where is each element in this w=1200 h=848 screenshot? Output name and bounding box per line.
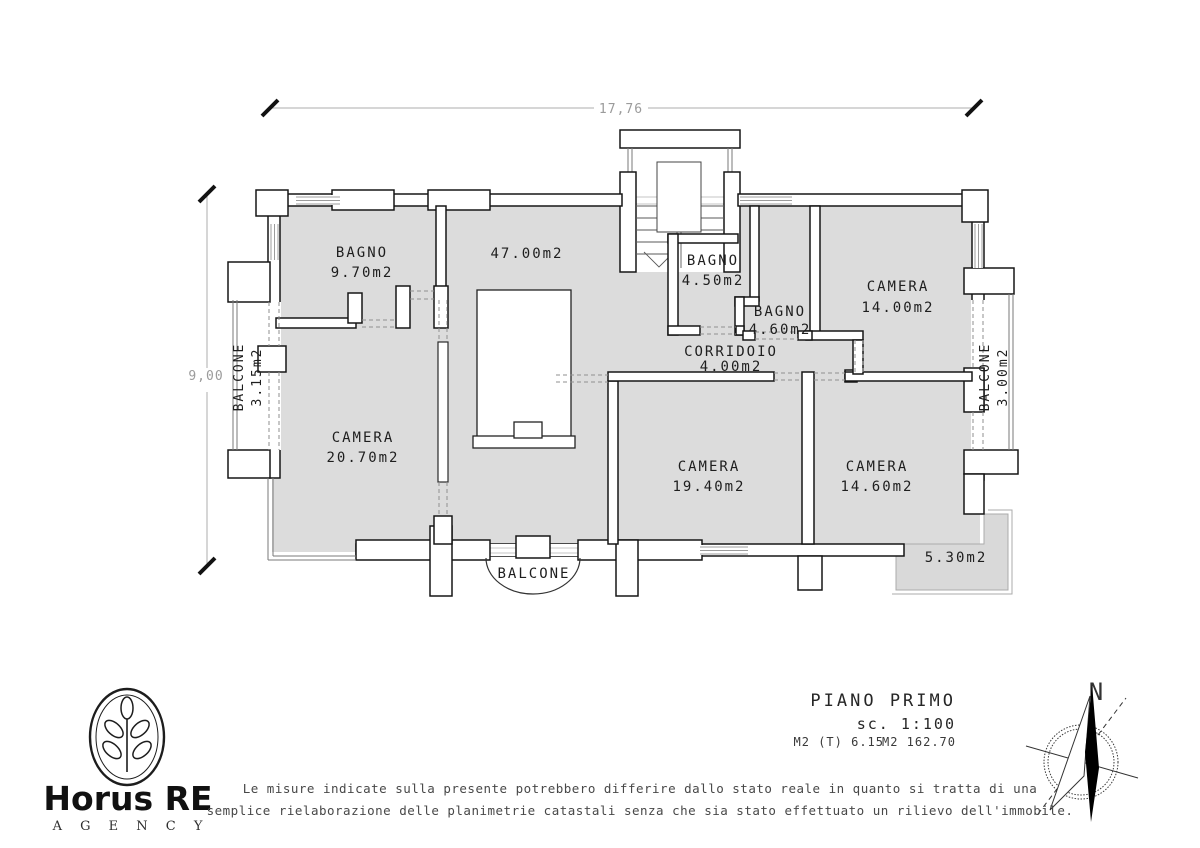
room-corridoio-area: 4.00m2 <box>700 359 763 375</box>
stair-landing <box>620 130 740 148</box>
room-bagno-c2-name: BAGNO <box>754 304 806 320</box>
room-camera-ne-area: 14.00m2 <box>861 300 934 316</box>
balcony-left-name: BALCONE <box>232 343 247 412</box>
wheat-branch-icon <box>100 697 154 772</box>
room-bagno-nw-area: 9.70m2 <box>331 265 394 281</box>
dimension-left: 9,00 <box>188 186 223 574</box>
floor-title: PIANO PRIMO <box>810 691 956 711</box>
room-camera-w-name: CAMERA <box>332 430 395 446</box>
room-bagno-c-area: 4.50m2 <box>682 273 745 289</box>
scale-label: sc. 1:100 <box>857 715 956 733</box>
logo-brand-text: Horus RE <box>43 779 212 818</box>
horus-logo: Horus RE A G E N C Y <box>43 689 212 834</box>
stair-upper-landing <box>657 162 701 232</box>
balcony-bottom: BALCONE <box>486 558 580 594</box>
area-note-right: M2 162.70 <box>882 735 956 749</box>
room-camera-s-area: 19.40m2 <box>672 479 745 495</box>
balcony-bottom-name: BALCONE <box>497 566 570 582</box>
width-dimension-label: 17,76 <box>599 102 643 117</box>
disclaimer-line2: semplice rielaborazione delle planimetri… <box>207 803 1074 818</box>
room-camera-se-area: 14.60m2 <box>840 479 913 495</box>
compass-rose-icon: N <box>1026 678 1138 822</box>
balcony-left: BALCONE 3.15m2 <box>232 300 265 450</box>
dimension-top: 17,76 <box>262 100 982 117</box>
title-block: PIANO PRIMO sc. 1:100 M2 (T) 6.15 M2 162… <box>794 691 956 749</box>
room-corridoio-name: CORRIDOIO <box>684 344 778 360</box>
balcony-door-sill <box>516 536 550 558</box>
living-void <box>473 290 575 448</box>
balcony-right-name: BALCONE <box>978 343 993 412</box>
balcony-left-area: 3.15m2 <box>250 348 265 407</box>
room-camera-ne-name: CAMERA <box>867 279 930 295</box>
room-camera-s-name: CAMERA <box>678 459 741 475</box>
balcony-right-area: 3.00m2 <box>996 348 1011 407</box>
room-fills <box>272 148 1012 594</box>
area-note-left: M2 (T) 6.15 <box>794 735 884 749</box>
floor-plan-sheet: BALCONE 3.15m2 BALCONE 3.00m2 BALCONE 5.… <box>0 0 1200 848</box>
room-camera-w-area: 20.70m2 <box>326 450 399 466</box>
terrace-area-label: 5.30m2 <box>925 550 988 566</box>
room-camera-se-name: CAMERA <box>846 459 909 475</box>
height-dimension-label: 9,00 <box>188 369 223 384</box>
room-bagno-c2-area: 4.60m2 <box>749 322 812 338</box>
room-soggiorno-area: 47.00m2 <box>490 246 563 262</box>
room-bagno-nw-name: BAGNO <box>336 245 388 261</box>
floor-plan-drawing: BALCONE 3.15m2 BALCONE 3.00m2 BALCONE 5.… <box>0 0 1200 848</box>
disclaimer-line1: Le misure indicate sulla presente potreb… <box>243 781 1038 796</box>
room-bagno-c-name: BAGNO <box>687 253 739 269</box>
logo-subtitle-text: A G E N C Y <box>52 819 210 834</box>
disclaimer: Le misure indicate sulla presente potreb… <box>207 781 1074 818</box>
